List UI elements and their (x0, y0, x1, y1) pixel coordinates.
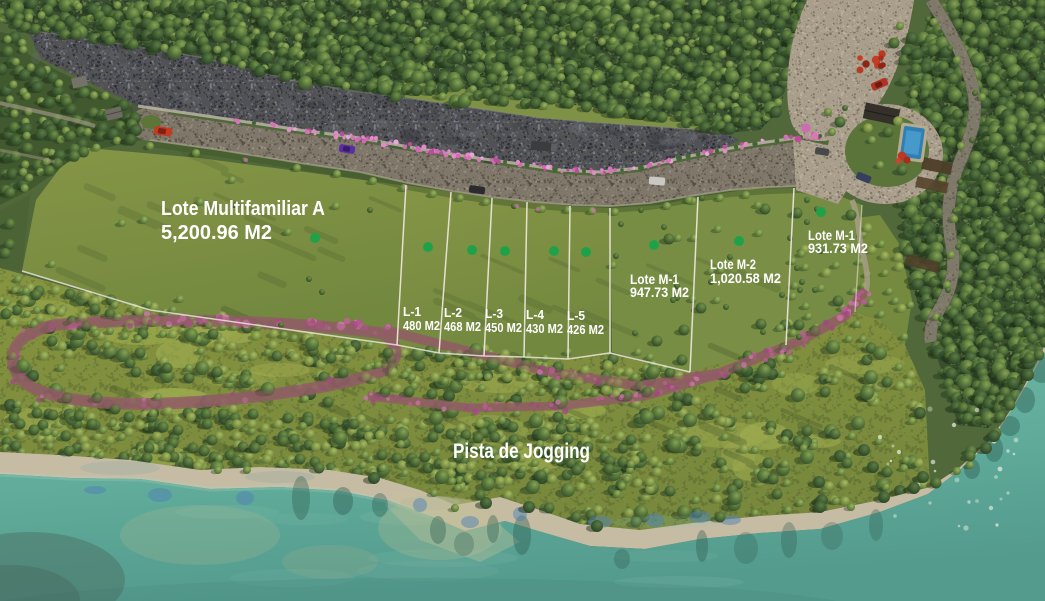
svg-text:Pista de Jogging: Pista de Jogging (453, 440, 590, 463)
svg-text:1,020.58 M2: 1,020.58 M2 (710, 271, 781, 286)
svg-text:Lote Multifamiliar A: Lote Multifamiliar A (161, 198, 325, 220)
svg-text:L-5: L-5 (567, 308, 585, 323)
svg-text:450 M2: 450 M2 (485, 320, 522, 335)
svg-text:430 M2: 430 M2 (526, 321, 563, 336)
svg-text:Lote M-2: Lote M-2 (710, 257, 756, 272)
svg-text:426 M2: 426 M2 (567, 322, 604, 337)
svg-text:L-3: L-3 (485, 306, 503, 321)
svg-text:L-4: L-4 (526, 307, 545, 322)
svg-text:468 M2: 468 M2 (444, 319, 481, 334)
svg-text:480 M2: 480 M2 (403, 318, 440, 333)
svg-text:L-2: L-2 (444, 305, 462, 320)
svg-text:947.73 M2: 947.73 M2 (630, 285, 689, 300)
svg-text:5,200.96 M2: 5,200.96 M2 (161, 222, 272, 244)
svg-text:L-1: L-1 (403, 304, 421, 319)
svg-text:931.73 M2: 931.73 M2 (808, 241, 868, 256)
